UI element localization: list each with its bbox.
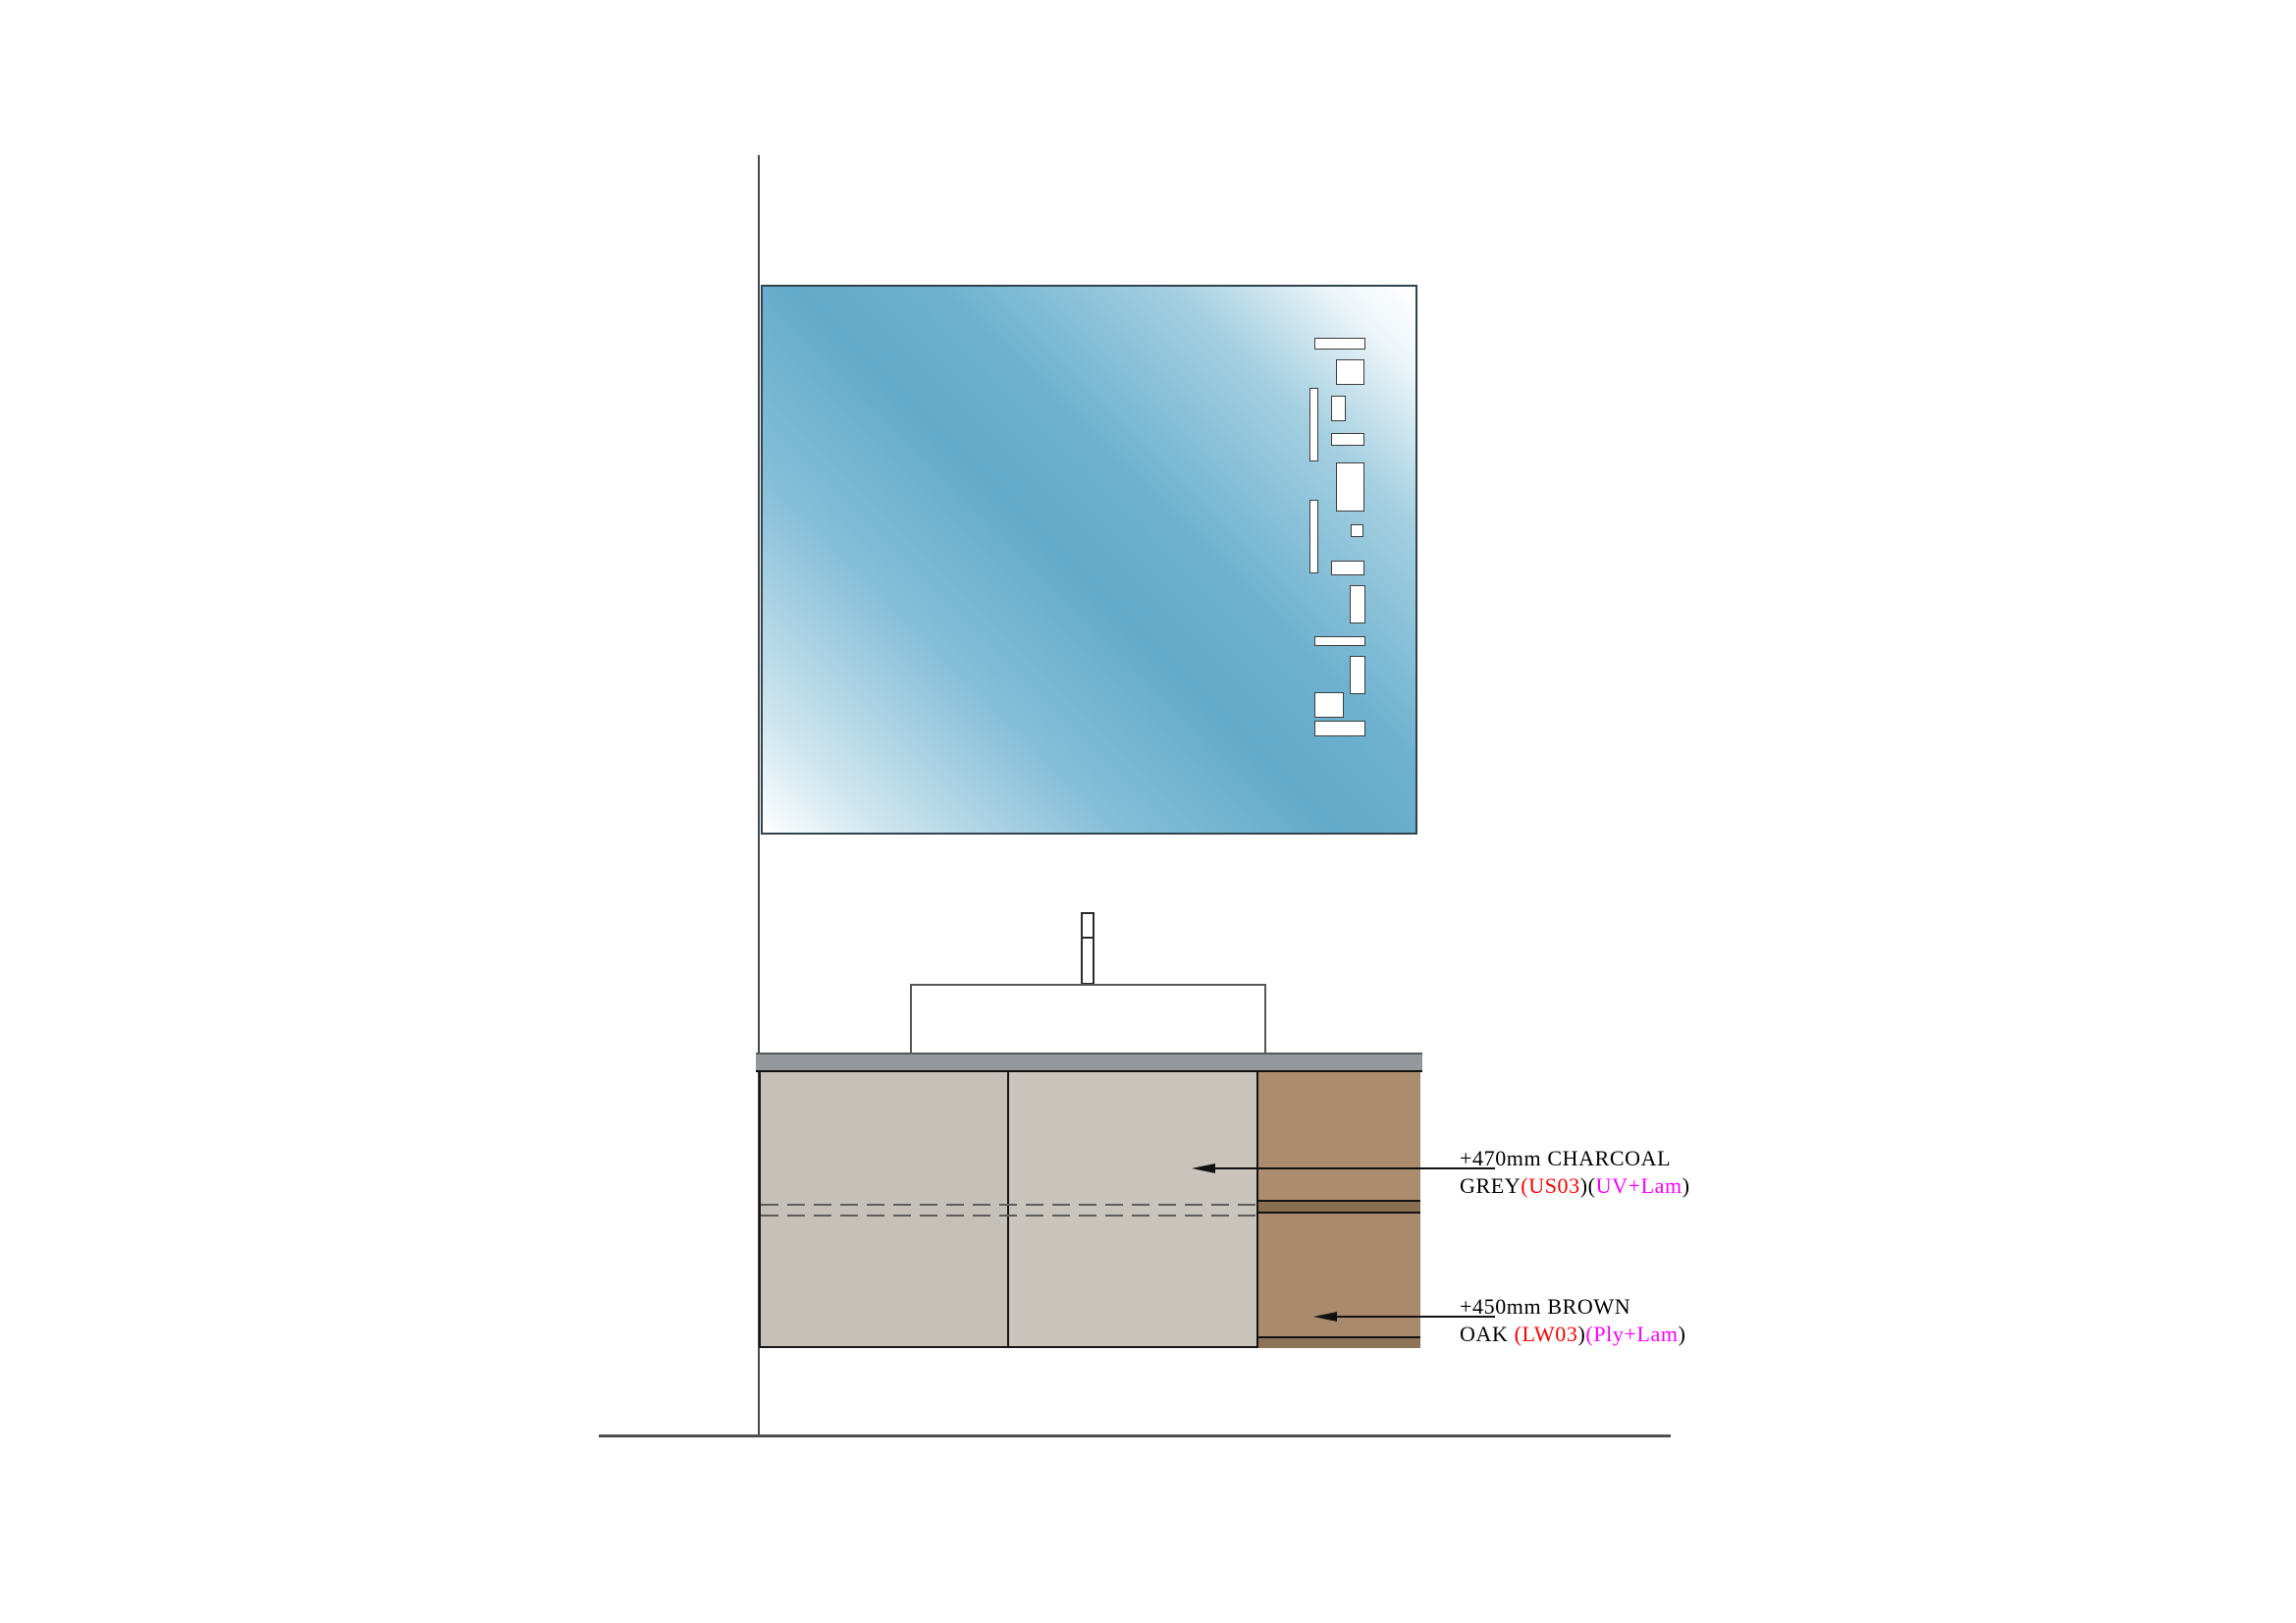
drawer-top: [1258, 1072, 1420, 1200]
drawer-divider-band: [1258, 1200, 1420, 1214]
countertop: [756, 1053, 1422, 1072]
plinth-band: [1258, 1336, 1420, 1348]
pattern-rect: [1314, 636, 1365, 646]
annotation-charcoal-line2: GREY(US03)(UV+Lam): [1460, 1172, 1754, 1200]
side-drawer-unit: [1256, 1072, 1420, 1346]
annotation-segment: UV+Lam: [1596, 1173, 1682, 1198]
annotation-segment: GREY: [1460, 1173, 1521, 1198]
pattern-rect: [1350, 585, 1365, 623]
annotation-charcoal-line1: +470mm CHARCOAL: [1460, 1145, 1754, 1172]
annotation-oak-line2: OAK (LW03)(Ply+Lam): [1460, 1321, 1754, 1348]
pattern-rect: [1331, 433, 1364, 446]
faucet: [1081, 912, 1095, 985]
drawer-bottom: [1258, 1214, 1420, 1336]
pattern-rect: [1331, 396, 1346, 421]
annotation-segment: )(: [1580, 1173, 1596, 1198]
annotation-segment: (LW03: [1515, 1322, 1578, 1346]
annotation-segment: ): [1679, 1322, 1686, 1346]
elevation-drawing: +470mm CHARCOAL GREY(US03)(UV+Lam) +450m…: [0, 0, 2296, 1623]
annotation-segment: (Ply+Lam: [1585, 1322, 1678, 1346]
pattern-rect: [1314, 338, 1365, 350]
pattern-rect: [1336, 462, 1364, 512]
arrowhead-charcoal-icon: [1192, 1163, 1215, 1173]
leader-line-charcoal: [1205, 1167, 1495, 1169]
floor-line: [599, 1434, 1671, 1437]
pattern-rect: [1351, 524, 1363, 537]
pattern-rect: [1336, 359, 1364, 385]
annotation-segment: OAK: [1460, 1322, 1515, 1346]
arrowhead-oak-icon: [1313, 1312, 1337, 1322]
vanity-cabinet: [759, 1072, 1418, 1348]
pattern-rect: [1309, 500, 1318, 573]
pattern-rect: [1314, 692, 1344, 718]
hidden-shelf-dashed-line-2: [761, 1215, 1256, 1217]
pattern-rect: [1331, 561, 1364, 575]
pattern-rect: [1350, 656, 1365, 694]
hidden-shelf-dashed-line-1: [761, 1204, 1256, 1206]
annotation-charcoal-grey: +470mm CHARCOAL GREY(US03)(UV+Lam): [1460, 1145, 1754, 1200]
door-divider-line: [1007, 1072, 1009, 1346]
mirror: [761, 285, 1417, 835]
annotation-brown-oak: +450mm BROWN OAK (LW03)(Ply+Lam): [1460, 1293, 1754, 1348]
annotation-segment: (US03: [1521, 1173, 1579, 1198]
pattern-rect: [1314, 721, 1365, 736]
cabinet-door-right: [1007, 1072, 1256, 1346]
annotation-oak-line1: +450mm BROWN: [1460, 1293, 1754, 1321]
basin: [910, 984, 1266, 1054]
cabinet-door-left: [761, 1072, 1007, 1346]
faucet-joint-line: [1083, 937, 1093, 939]
annotation-segment: ): [1682, 1173, 1690, 1198]
pattern-rect: [1309, 388, 1318, 461]
